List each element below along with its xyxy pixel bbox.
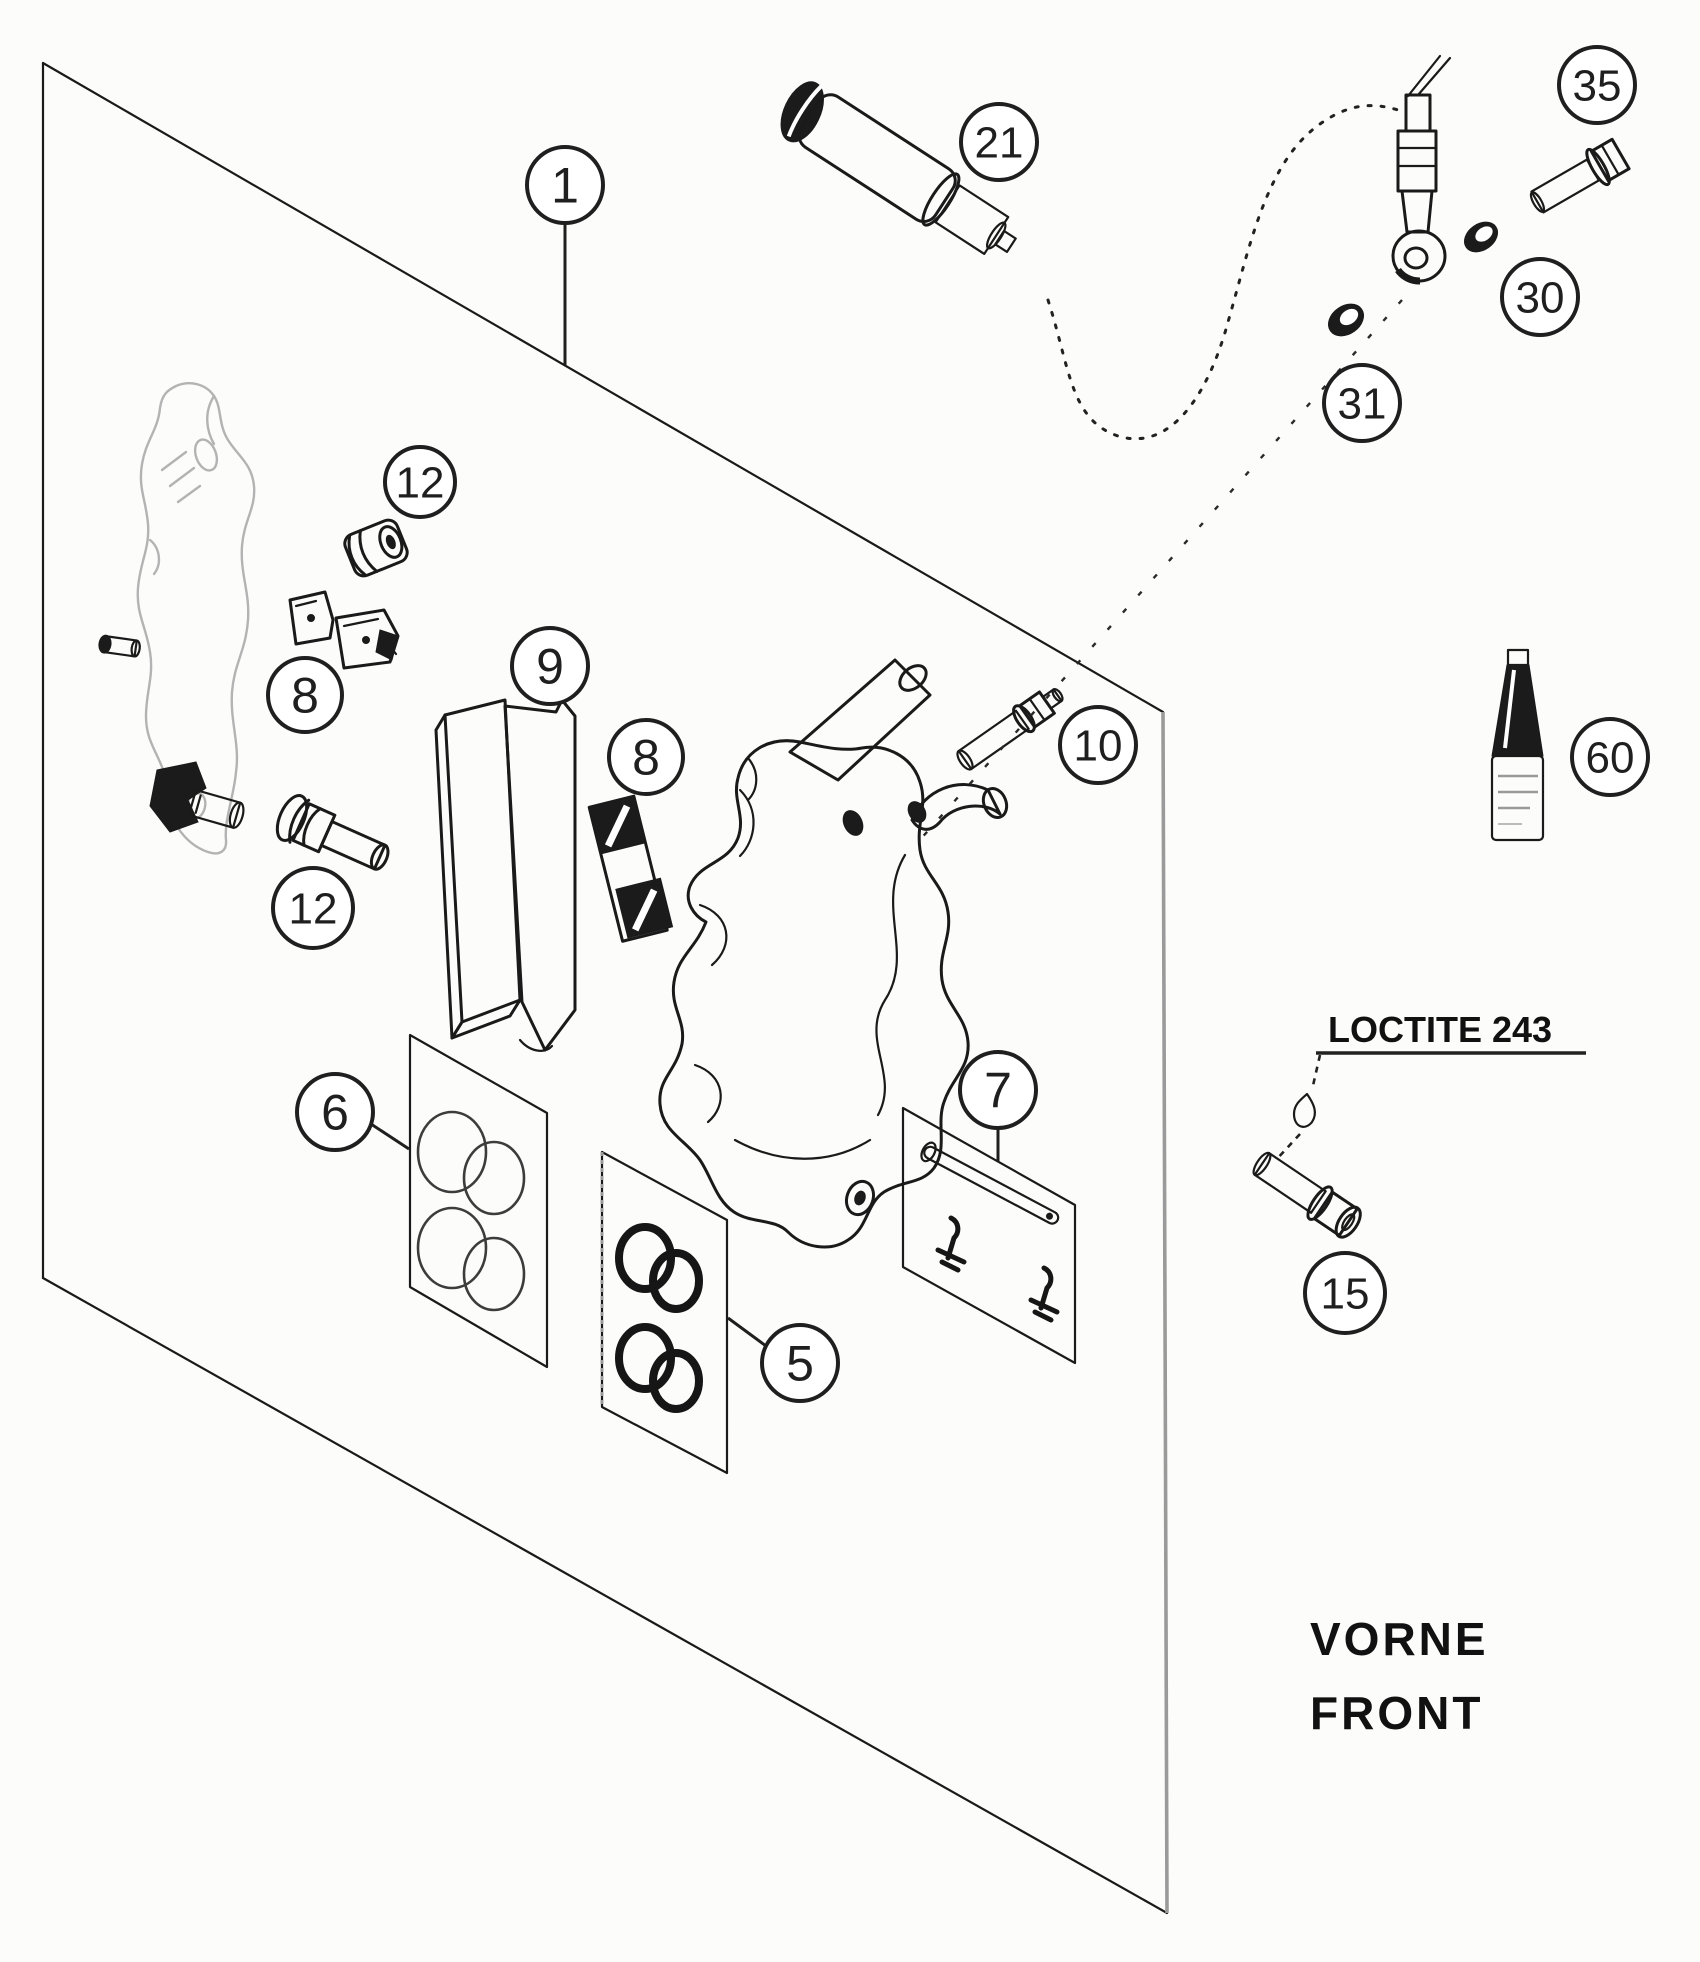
guide-pin-part-12-lower (271, 791, 396, 882)
caliper-carrier-bracket (98, 383, 254, 853)
callout-number-15: 15 (1321, 1269, 1370, 1318)
callout-35: 35 (1559, 47, 1635, 123)
callout-8-right: 8 (609, 720, 683, 794)
callout-number-30: 30 (1516, 273, 1565, 322)
callout-number-8-left: 8 (291, 668, 319, 724)
callout-15: 15 (1305, 1253, 1385, 1333)
bracket-stud (98, 634, 141, 658)
sealing-washer-part-31 (1322, 298, 1369, 343)
frame-right-edge (1163, 712, 1167, 1913)
frame-bottom-edge (43, 1278, 1167, 1913)
callout-5: 5 (728, 1318, 838, 1401)
loctite-leader-dash-2 (1276, 1134, 1300, 1160)
callout-leader-5 (728, 1318, 766, 1346)
callout-number-5: 5 (786, 1336, 814, 1392)
callout-number-8-right: 8 (632, 730, 660, 786)
callout-9: 9 (512, 628, 588, 704)
bushing-part-12-upper (342, 517, 410, 579)
callout-leader-6 (371, 1124, 409, 1149)
bleeder-screw-part-10 (952, 681, 1069, 775)
callout-number-21: 21 (975, 118, 1024, 167)
piston-kit-box-6 (410, 1035, 547, 1367)
loctite-drop-icon (1294, 1094, 1315, 1127)
callout-1: 1 (527, 147, 603, 365)
callout-21: 21 (961, 104, 1037, 180)
callout-number-9: 9 (536, 639, 564, 695)
loctite-leader-dash-1 (1312, 1055, 1320, 1090)
hose-end-fitting (1393, 56, 1450, 281)
callout-number-12-lower: 12 (289, 884, 338, 933)
callout-12-upper: 12 (385, 447, 455, 517)
grease-tube-part-60 (1492, 650, 1543, 840)
frame-plane (43, 63, 1167, 1913)
banjo-bolt-part-35 (1524, 137, 1631, 222)
callout-30: 30 (1502, 259, 1578, 335)
callout-number-10: 10 (1074, 721, 1123, 770)
loctite-label: LOCTITE 243 (1328, 1009, 1552, 1050)
callout-number-6: 6 (321, 1085, 349, 1141)
callout-number-1: 1 (551, 158, 579, 214)
callout-8-left: 8 (268, 658, 342, 732)
callout-60: 60 (1572, 719, 1648, 795)
parts-diagram-page: LOCTITE 243 VORNE FRONT 1213530311289810… (0, 0, 1700, 1962)
callout-number-31: 31 (1338, 379, 1387, 428)
callout-number-12-upper: 12 (396, 458, 445, 507)
pin-kit-box-7 (903, 1108, 1075, 1363)
loctite-note: LOCTITE 243 (1276, 1009, 1586, 1160)
cotter-clip (1031, 1268, 1057, 1320)
exploded-view-diagram: LOCTITE 243 VORNE FRONT 1213530311289810… (0, 0, 1700, 1962)
callout-6: 6 (297, 1074, 409, 1150)
callout-31: 31 (1324, 365, 1400, 441)
orientation-vorne: VORNE (1310, 1613, 1489, 1665)
orientation-front: FRONT (1310, 1687, 1483, 1739)
mounting-bolt-part-15 (1247, 1145, 1366, 1242)
callout-7: 7 (960, 1052, 1036, 1161)
callout-number-35: 35 (1573, 61, 1622, 110)
cotter-clip (938, 1218, 964, 1270)
pad-clip-part-8 (589, 795, 673, 941)
callout-12-lower: 12 (273, 868, 353, 948)
orientation-label: VORNE FRONT (1310, 1613, 1489, 1739)
seal-kit-box-5 (602, 1152, 727, 1473)
callout-number-7: 7 (984, 1063, 1012, 1119)
sealing-washer-part-30 (1459, 216, 1503, 258)
callout-10: 10 (1060, 707, 1136, 783)
brake-pads-part-9 (436, 700, 575, 1051)
bleeder-cap (905, 785, 1011, 830)
callout-number-60: 60 (1586, 733, 1635, 782)
